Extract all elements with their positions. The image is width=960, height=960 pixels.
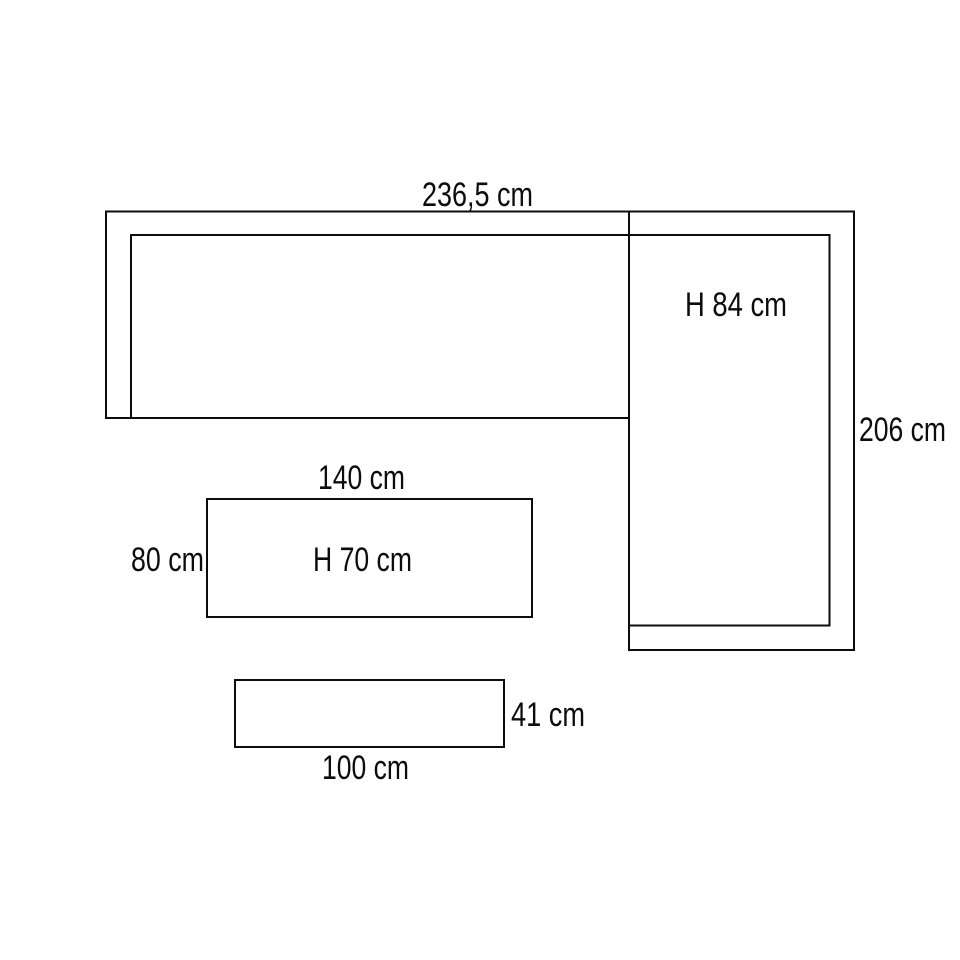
svg-text:206 cm: 206 cm [859,411,946,449]
svg-text:80 cm: 80 cm [131,541,204,579]
svg-text:100 cm: 100 cm [322,749,409,787]
svg-text:H 84 cm: H 84 cm [685,286,787,324]
svg-text:H 70 cm: H 70 cm [313,541,412,579]
svg-text:41 cm: 41 cm [511,696,585,734]
svg-text:236,5 cm: 236,5 cm [422,176,533,214]
svg-text:140 cm: 140 cm [318,459,405,497]
